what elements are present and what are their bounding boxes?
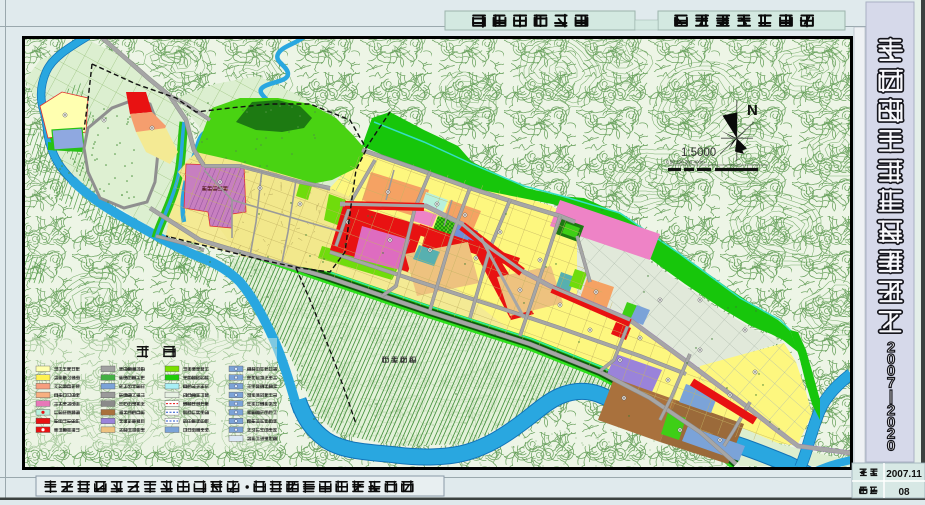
svg-text:0: 0 bbox=[887, 437, 895, 454]
svg-text:1:5000: 1:5000 bbox=[681, 147, 716, 159]
svg-text:0 50 100 200: 0 50 100 200 400m bbox=[666, 160, 705, 165]
svg-text:N: N bbox=[747, 102, 758, 119]
svg-text:08: 08 bbox=[898, 487, 910, 498]
svg-text:2007.11: 2007.11 bbox=[886, 469, 922, 480]
